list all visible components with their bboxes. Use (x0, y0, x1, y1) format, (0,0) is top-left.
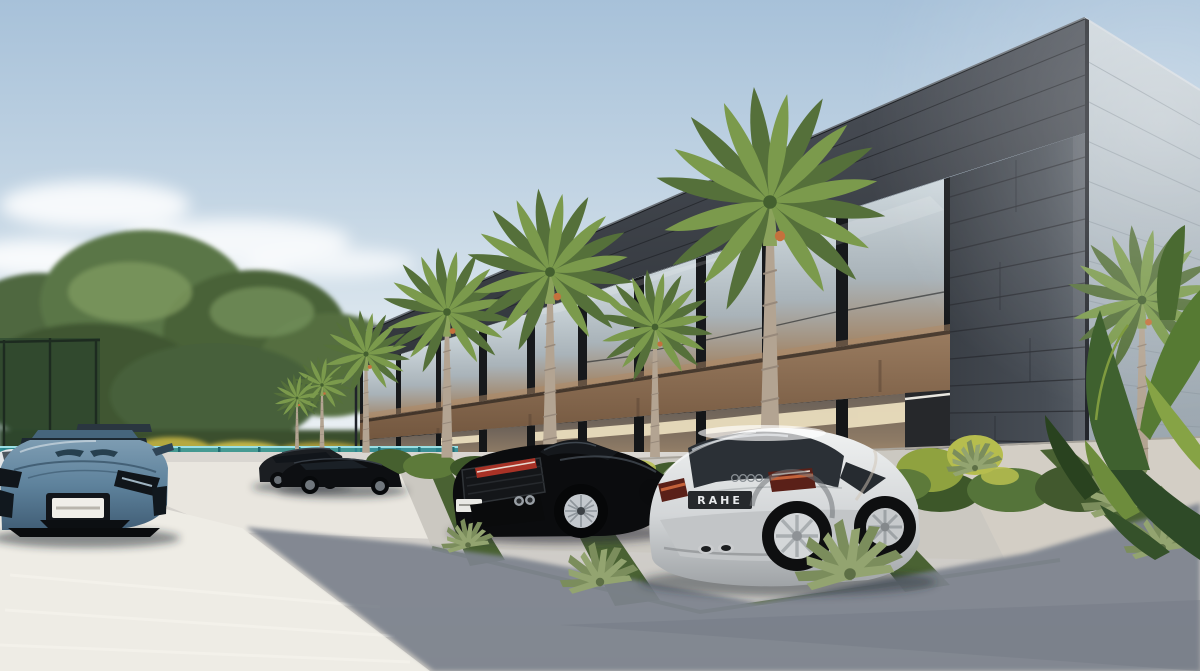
license-plate-text: RAHE (697, 494, 743, 507)
wheel (554, 484, 608, 538)
architectural-render: RAHE (0, 0, 1200, 671)
